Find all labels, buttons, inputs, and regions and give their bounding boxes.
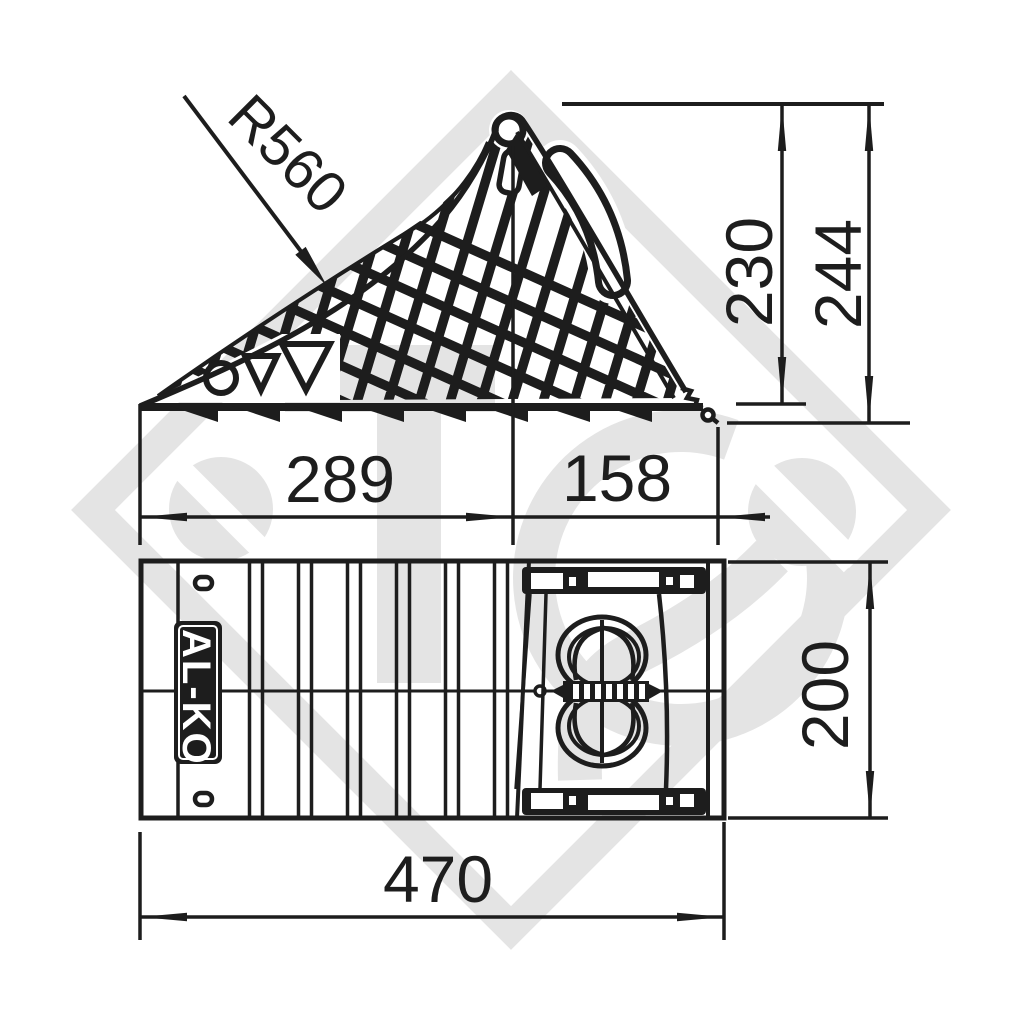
svg-text:289: 289 bbox=[285, 442, 395, 516]
svg-text:200: 200 bbox=[788, 640, 862, 750]
svg-text:244: 244 bbox=[801, 219, 875, 329]
svg-text:230: 230 bbox=[712, 217, 786, 327]
svg-text:470: 470 bbox=[383, 842, 493, 916]
svg-text:158: 158 bbox=[562, 441, 672, 515]
svg-text:AL-KO: AL-KO bbox=[174, 629, 218, 766]
svg-text:R560: R560 bbox=[216, 82, 360, 226]
